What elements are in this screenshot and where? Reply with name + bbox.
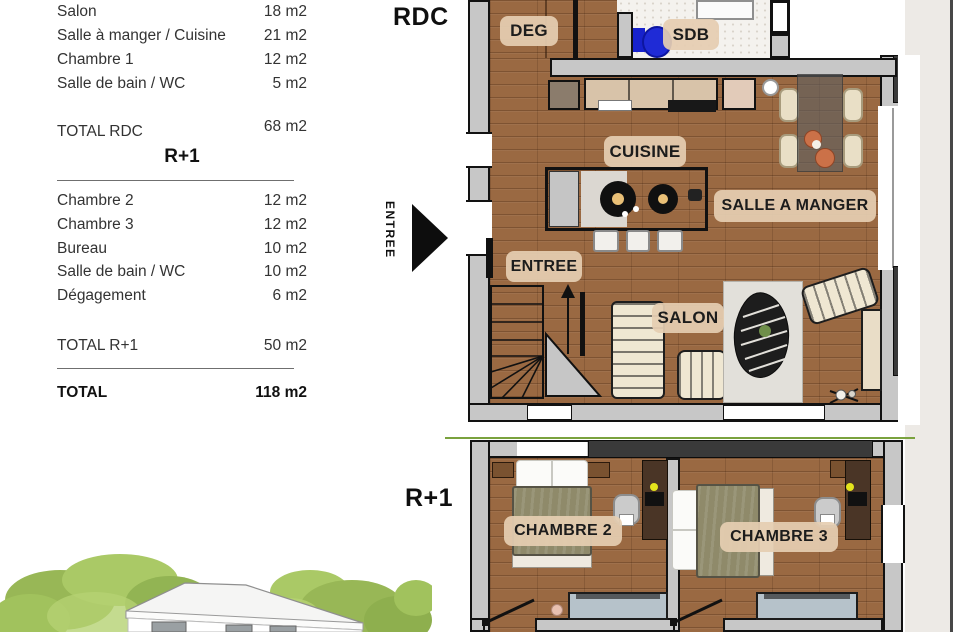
coffee-maker — [688, 189, 702, 201]
table-row: Chambre 2 12 m2 — [57, 191, 307, 211]
bar-stool — [657, 230, 683, 252]
row-label: Chambre 2 — [57, 191, 134, 211]
row-value: 21 m2 — [264, 26, 307, 46]
house-render — [0, 538, 432, 632]
nightstand — [586, 462, 610, 478]
napkin — [812, 140, 821, 149]
window-opening — [723, 405, 825, 420]
room-label-entree: ENTREE — [506, 251, 582, 282]
door-swings — [470, 590, 770, 632]
row-label: TOTAL RDC — [57, 122, 143, 142]
plate — [815, 148, 835, 168]
rug-pattern — [727, 287, 799, 397]
row-value: 18 m2 — [264, 2, 307, 22]
table-row: Salle de bain / WC 5 m2 — [57, 74, 307, 94]
floorplan-page: Salon 18 m2 Salle à manger / Cuisine 21 … — [0, 0, 955, 632]
table-row: Salle de bain / WC 10 m2 — [57, 262, 307, 282]
table-row-total-r1: TOTAL R+1 50 m2 — [57, 336, 307, 356]
terrace-strip — [898, 55, 920, 425]
table-header-r1: R+1 — [57, 146, 307, 168]
room-label-salon: SALON — [652, 303, 724, 333]
laptop — [645, 492, 664, 506]
row-label: Salon — [57, 2, 97, 22]
window-opening — [881, 505, 905, 563]
row-label: Salle de bain / WC — [57, 262, 185, 282]
room-label-sdb: SDB — [663, 19, 719, 50]
row-value: 68 m2 — [264, 117, 307, 137]
sliding-door-line — [892, 108, 894, 268]
row-label: Chambre 3 — [57, 215, 134, 235]
tv-stand — [861, 309, 882, 391]
table-row: Salle à manger / Cuisine 21 m2 — [57, 26, 307, 46]
wall-top-dark — [588, 440, 873, 458]
room-label-chambre2: CHAMBRE 2 — [504, 516, 622, 546]
wall-column-base — [770, 34, 790, 58]
table-row: Salon 18 m2 — [57, 2, 307, 22]
wall-sdb-pier — [617, 12, 633, 58]
rdc-title: RDC — [393, 3, 449, 32]
window-opening — [527, 405, 572, 420]
row-value: 10 m2 — [264, 262, 307, 282]
row-value: 6 m2 — [273, 286, 307, 306]
room-label-salle-a-manger: SALLE A MANGER — [714, 190, 876, 222]
row-label: Chambre 1 — [57, 50, 134, 70]
row-label: Bureau — [57, 239, 107, 259]
dining-chair — [779, 134, 799, 168]
wall-lamp — [762, 79, 779, 96]
kitchen-cabinet — [548, 80, 580, 110]
entree-arrow-icon — [412, 204, 448, 272]
pot-content — [612, 193, 624, 205]
table-row: Chambre 3 12 m2 — [57, 215, 307, 235]
entree-vertical-label: ENTREE — [383, 201, 397, 277]
room-label-cuisine: CUISINE — [604, 136, 686, 167]
room-label-chambre3: CHAMBRE 3 — [720, 522, 838, 552]
kitchen-sink — [598, 100, 632, 111]
side-table — [828, 385, 862, 405]
radiator-bar — [764, 594, 850, 599]
row-value: 12 m2 — [264, 50, 307, 70]
row-label: Dégagement — [57, 286, 146, 306]
page-edge-line — [950, 0, 953, 632]
loveseat — [677, 350, 727, 400]
wall-kitchen-band — [550, 58, 897, 77]
dining-chair — [843, 88, 863, 122]
grass-line — [445, 437, 915, 439]
lamp-dot — [846, 483, 854, 491]
table-row-total-rdc: TOTAL RDC 68 m2 — [57, 122, 307, 142]
divider — [57, 368, 294, 369]
window-opening — [517, 440, 587, 458]
kitchen-cabinet — [722, 78, 756, 110]
table-row: Bureau 10 m2 — [57, 239, 307, 259]
row-value: 50 m2 — [264, 336, 307, 356]
shower — [696, 0, 754, 20]
table-row-total: TOTAL 118 m2 — [57, 383, 307, 403]
row-value: 12 m2 — [264, 215, 307, 235]
row-label: Salle à manger / Cuisine — [57, 26, 226, 46]
dining-chair — [843, 134, 863, 168]
row-value: 12 m2 — [264, 191, 307, 211]
row-value: 5 m2 — [273, 74, 307, 94]
wall-deg — [573, 0, 578, 58]
table-row: Chambre 1 12 m2 — [57, 50, 307, 70]
laptop — [848, 492, 867, 506]
nightstand — [492, 462, 514, 478]
bar-stool — [593, 230, 619, 252]
row-value: 10 m2 — [264, 239, 307, 259]
r1-title: R+1 — [405, 484, 453, 513]
row-label: Salle de bain / WC — [57, 74, 185, 94]
dining-chair — [779, 88, 799, 122]
row-value: 118 m2 — [255, 383, 307, 403]
room-label-deg: DEG — [500, 16, 558, 46]
bar-stool — [626, 230, 650, 252]
lamp-dot — [650, 483, 658, 491]
row-label: TOTAL R+1 — [57, 336, 138, 356]
table-row: Dégagement 6 m2 — [57, 286, 307, 306]
wall-column — [770, 0, 790, 34]
pot-content — [658, 194, 668, 204]
island-dish — [622, 211, 628, 217]
window-opening — [466, 132, 492, 168]
island-dish — [633, 206, 639, 212]
row-label: TOTAL — [57, 383, 107, 403]
kitchen-oven — [668, 100, 716, 112]
staircase — [488, 282, 604, 404]
divider — [57, 180, 294, 181]
island-cabinet — [549, 171, 579, 227]
entry-door-jamb — [486, 238, 493, 278]
